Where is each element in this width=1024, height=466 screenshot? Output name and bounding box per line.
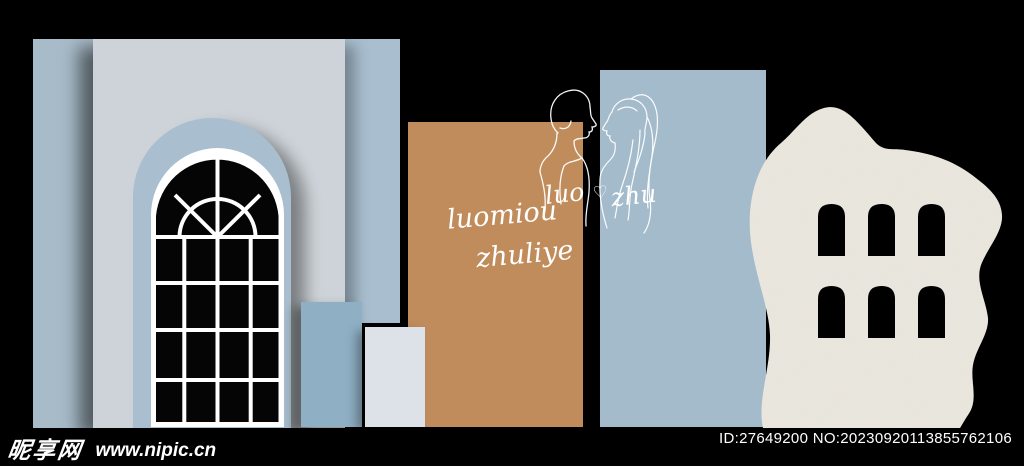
heart-icon: ♡ (592, 184, 609, 203)
backdrop-script-line2: zhuliye (475, 237, 574, 272)
site-url-text: www.nipic.cn (95, 440, 216, 462)
blue-column-panel (343, 39, 400, 323)
design-canvas: luomiou zhuliye luo ♡ zhu 昵享网 www.nipic.… (0, 0, 1024, 466)
image-id-text: ID:27649200 NO:20230920113855762106 (719, 430, 1012, 447)
site-logo: 昵享网 www.nipic.cn (8, 431, 216, 465)
watermark-bar: 昵享网 www.nipic.cn ID:27649200 NO:20230920… (0, 429, 1024, 466)
tan-backdrop-panel (408, 122, 583, 427)
site-logo-cn-text: 昵享网 (6, 431, 86, 465)
white-pedestal-block (365, 327, 425, 427)
arched-window-icon (145, 140, 290, 432)
blob-stucco-texture (735, 95, 1015, 435)
left-blue-strip-panel (33, 39, 95, 428)
couple-name-left: luo (544, 179, 586, 208)
texture-blob-icon (735, 95, 1015, 435)
couple-name-right: zhu (610, 181, 658, 211)
blue-pedestal-block (301, 302, 362, 427)
